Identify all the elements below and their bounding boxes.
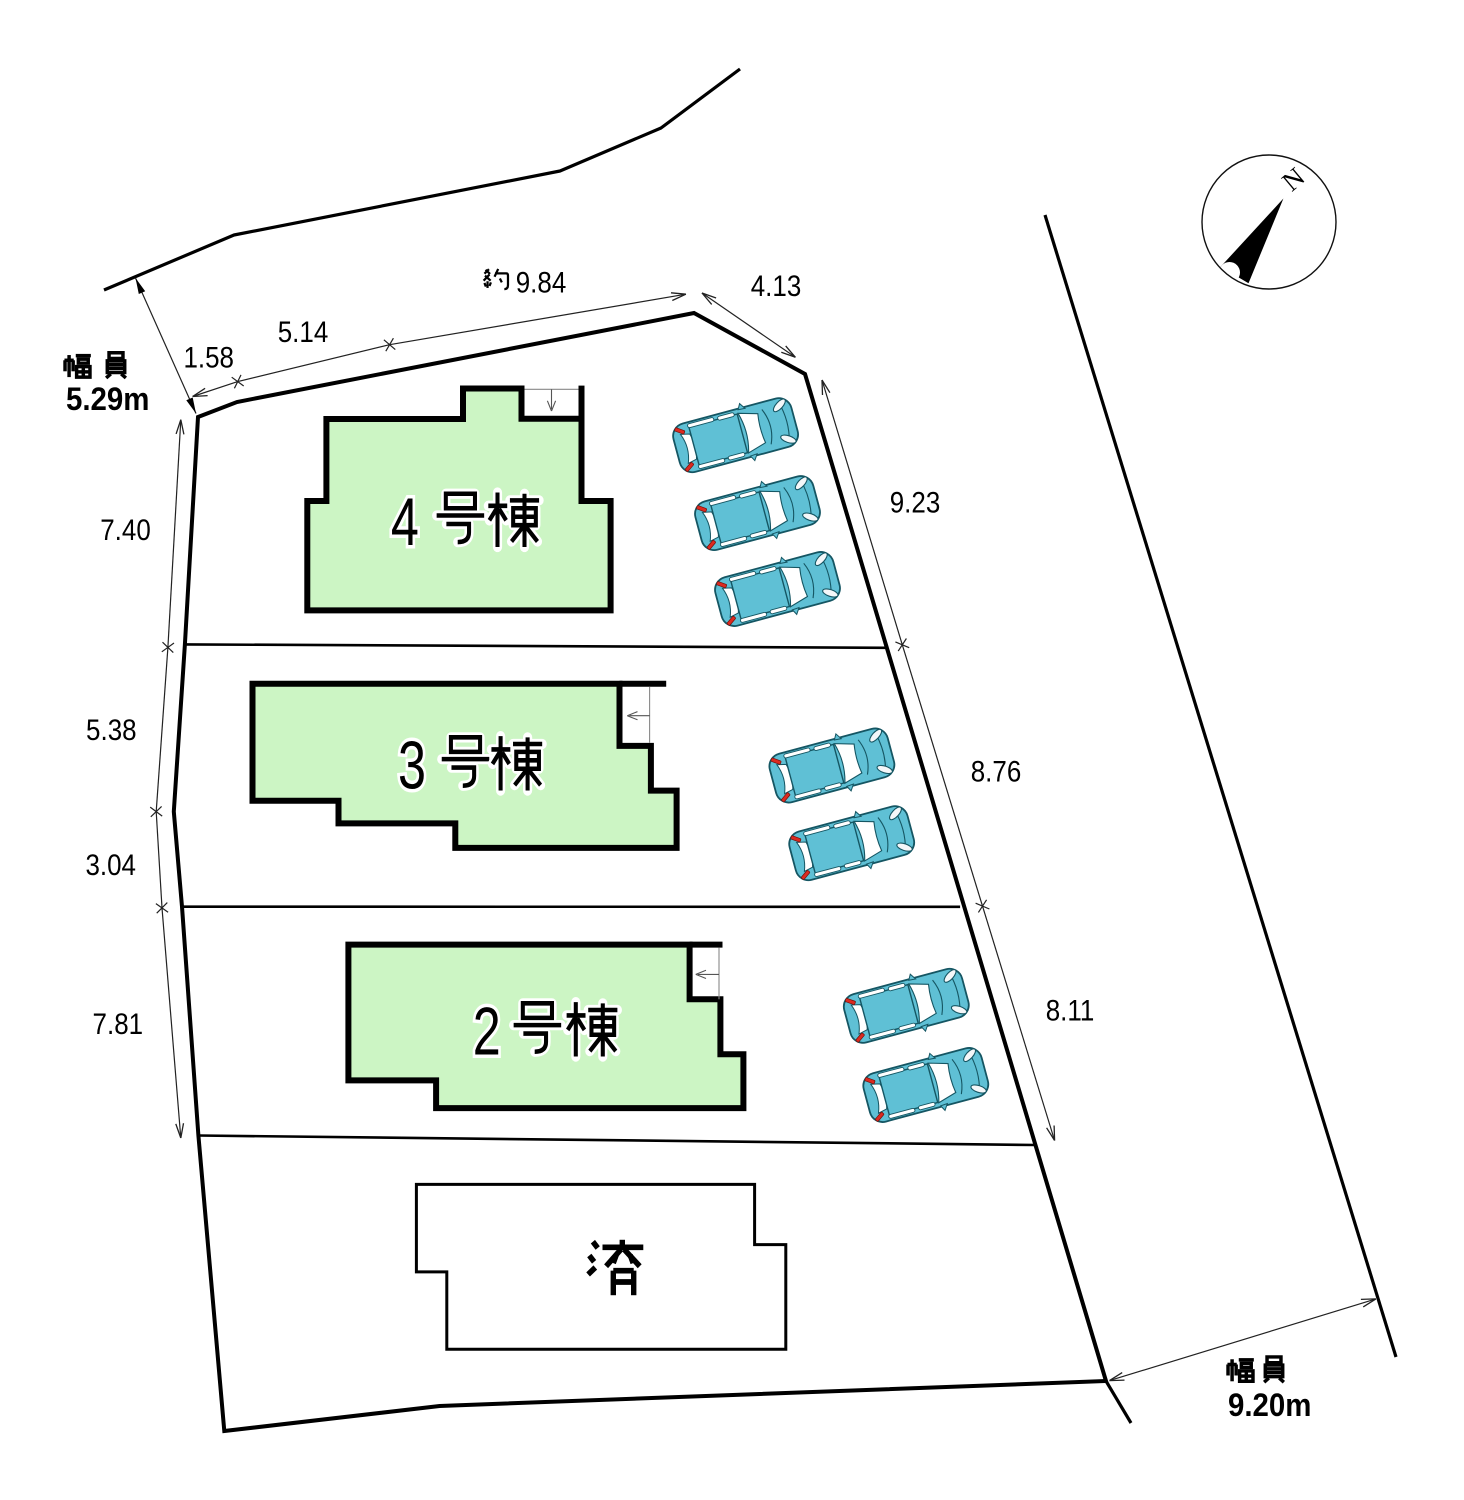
svg-text:1.58: 1.58 — [183, 341, 233, 374]
svg-text:7.81: 7.81 — [93, 1007, 143, 1040]
svg-text:8.76: 8.76 — [971, 755, 1021, 788]
svg-text:5.38: 5.38 — [86, 713, 136, 746]
svg-text:2: 2 — [473, 993, 501, 1069]
svg-text:5.14: 5.14 — [278, 315, 328, 348]
svg-text:4.13: 4.13 — [751, 270, 801, 303]
svg-text:8.11: 8.11 — [1046, 994, 1095, 1027]
svg-text:9.23: 9.23 — [890, 486, 940, 519]
svg-text:9.20m: 9.20m — [1228, 1387, 1311, 1423]
svg-text:3.04: 3.04 — [85, 848, 135, 881]
svg-text:7.40: 7.40 — [100, 513, 150, 546]
svg-text:4: 4 — [391, 483, 419, 559]
svg-text:5.29m: 5.29m — [66, 381, 149, 417]
svg-text:3: 3 — [398, 727, 426, 803]
svg-text:9.84: 9.84 — [516, 266, 566, 299]
